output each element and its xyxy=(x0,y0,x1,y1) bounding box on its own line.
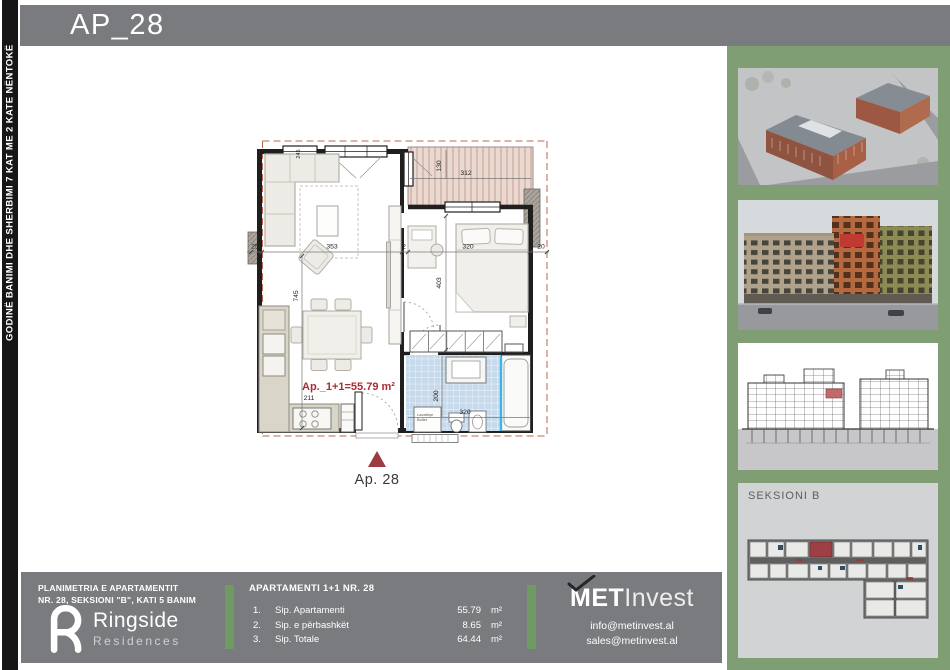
svg-text:403: 403 xyxy=(436,277,443,289)
render-street-image xyxy=(738,200,938,330)
plan-caption-line1: PLANIMETRIA E APARTAMENTIT xyxy=(38,582,196,594)
brand-subtitle: Residences xyxy=(93,634,181,648)
metinvest-check-icon xyxy=(566,575,596,592)
keyplan-panel: SEKSIONI B xyxy=(738,483,938,658)
table-row: 3. Sip. Totale 64.44 m² xyxy=(249,633,521,648)
footer-divider xyxy=(527,585,536,649)
apartment-marker-icon xyxy=(368,451,386,467)
entrance-threshold xyxy=(356,433,398,438)
svg-text:353: 353 xyxy=(326,244,338,251)
svg-text:200: 200 xyxy=(433,390,440,402)
elevation-drawing-image xyxy=(738,343,938,470)
left-spine-bar: GODINË BANIMI DHE SHERBIMI 7 KAT ME 2 KA… xyxy=(2,0,18,670)
svg-text:245: 245 xyxy=(296,149,302,158)
svg-text:312: 312 xyxy=(460,170,472,177)
area-table-title: APARTAMENTI 1+1 NR. 28 xyxy=(249,583,521,594)
render-aerial-image xyxy=(738,68,938,185)
building-description-vertical-text: GODINË BANIMI DHE SHERBIMI 7 KAT ME 2 KA… xyxy=(1,40,19,345)
plan-caption: PLANIMETRIA E APARTAMENTIT NR. 28, SEKSI… xyxy=(38,582,196,607)
brand-name: Ringside xyxy=(93,610,181,631)
svg-text:25: 25 xyxy=(251,244,259,251)
keyplan-highlighted-unit xyxy=(810,542,832,557)
floorplan-drawing: Lavatriçe Boiler xyxy=(240,118,555,496)
ringside-logo: Ringside Residences xyxy=(45,605,181,653)
metinvest-logo: METInvest xyxy=(570,584,694,613)
area-table: APARTAMENTI 1+1 NR. 28 1. Sip. Apartamen… xyxy=(249,583,521,648)
apartment-marker-label: Ap. 28 xyxy=(355,472,400,488)
title-block-footer: PLANIMETRIA E APARTAMENTIT NR. 28, SEKSI… xyxy=(21,572,722,663)
apartment-code-title: AP_28 xyxy=(20,5,950,46)
wardrobe xyxy=(410,331,523,352)
plan-sheet: GODINË BANIMI DHE SHERBIMI 7 KAT ME 2 KA… xyxy=(0,0,950,670)
keyplan-drawing xyxy=(738,483,938,658)
apartment-area-label: Ap._1+1=55.79 m² xyxy=(302,381,395,393)
bathroom: Lavatriçe Boiler xyxy=(406,355,531,432)
facade-grill xyxy=(412,435,458,443)
keyplan-title: SEKSIONI B xyxy=(748,490,820,502)
svg-text:130: 130 xyxy=(436,160,443,172)
svg-text:745: 745 xyxy=(293,290,300,302)
sheet-header: AP_28 xyxy=(20,5,950,46)
svg-text:320: 320 xyxy=(462,244,474,251)
svg-text:20: 20 xyxy=(537,244,545,251)
email-info: info@metinvest.al xyxy=(541,619,723,634)
table-row: 1. Sip. Apartamenti 55.79 m² xyxy=(249,604,521,619)
svg-text:320: 320 xyxy=(459,409,471,416)
footer-divider xyxy=(225,585,234,649)
email-sales: sales@metinvest.al xyxy=(541,634,723,649)
ringside-r-icon xyxy=(45,605,85,653)
table-row: 2. Sip. e përbashkët 8.65 m² xyxy=(249,619,521,634)
bedroom-furniture xyxy=(408,224,528,327)
svg-text:2: 2 xyxy=(402,244,406,251)
metinvest-block: METInvest info@metinvest.al sales@metinv… xyxy=(541,578,723,649)
sidebar-image-strip: SEKSIONI B xyxy=(727,46,950,670)
svg-text:211: 211 xyxy=(304,395,315,402)
